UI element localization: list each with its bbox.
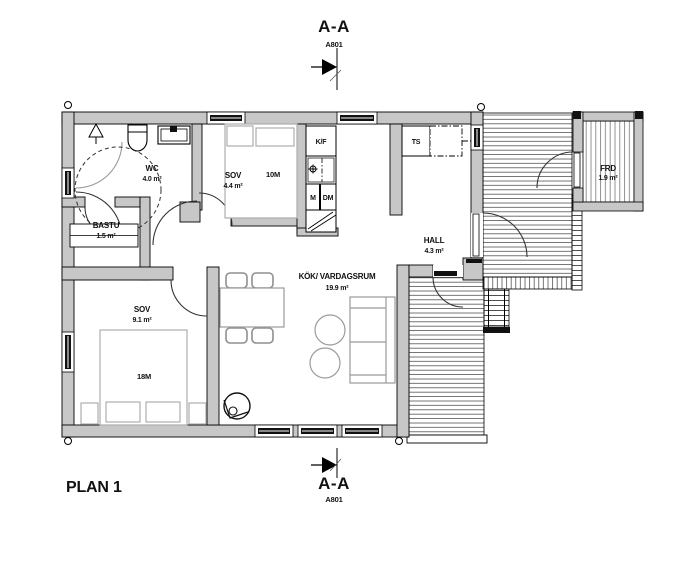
ref-point-marker <box>65 102 72 109</box>
kitchen-sink-unit <box>306 156 336 184</box>
side-table-round <box>315 315 345 345</box>
section-label-bottom: A-A <box>318 474 350 493</box>
pillow <box>106 402 140 422</box>
room-label-sov-small: SOV <box>225 171 242 180</box>
sheet-ref-bottom: A801 <box>325 495 342 504</box>
ref-point-marker <box>65 438 72 445</box>
frd-door-leaf <box>574 153 580 187</box>
room-label-wc: WC <box>146 164 159 173</box>
room-label-hall: HALL <box>424 236 445 245</box>
corner-marker <box>573 111 581 119</box>
wall-corner-block <box>180 202 200 222</box>
section-arrow-head <box>322 457 337 473</box>
frd-floor <box>583 121 634 202</box>
door-threshold <box>434 271 457 276</box>
future-closet-dashed <box>430 126 462 156</box>
section-arrow-head <box>322 59 337 75</box>
wall-sov-large-east <box>207 267 219 425</box>
section-tick <box>330 70 341 81</box>
section-marker-top: A-A A801 <box>311 17 350 90</box>
deck-upper <box>483 113 582 290</box>
room-area-sov-large: 9.1 m² <box>132 317 152 324</box>
door-swing-sov-large <box>171 280 207 316</box>
pillow <box>146 402 180 422</box>
dining-set <box>220 273 284 343</box>
section-marker-bottom: A-A A801 <box>311 448 350 504</box>
window <box>298 425 337 437</box>
wood-stove-icon <box>224 393 250 419</box>
wall-bastu-north <box>62 197 85 207</box>
bedside-table <box>81 403 98 424</box>
wall-north <box>62 112 483 124</box>
wall-sov-large-north <box>62 267 173 280</box>
room-area-bastu: 1.5 m² <box>96 233 116 240</box>
room-label-bastu: BASTU <box>93 221 120 230</box>
wall-hall-south <box>409 265 433 277</box>
room-label-frd: FRD <box>600 164 616 173</box>
page-title: PLAN 1 <box>66 479 122 496</box>
room-label-sov-large: SOV <box>134 305 151 314</box>
window <box>342 425 382 437</box>
stove-unit <box>306 210 336 232</box>
pillow <box>256 128 294 146</box>
section-label-top: A-A <box>318 17 350 36</box>
wall-kitchen-west <box>297 124 306 233</box>
sofa <box>350 297 395 383</box>
bedside-table <box>189 403 206 424</box>
floor-plan-drawing: A-A A801 A-A A801 PLAN 1 WC 4.0 m² BASTU… <box>0 0 694 568</box>
lounge-set <box>310 297 395 383</box>
wall-bastu-north <box>115 197 140 207</box>
wall-hall-stub <box>390 124 402 215</box>
room-area-frd: 1.9 m² <box>598 175 618 182</box>
window <box>62 168 74 198</box>
wall-east-lower <box>397 265 409 437</box>
window <box>471 125 483 150</box>
bed-label-18m: 18M <box>137 372 151 381</box>
bedside-shelf <box>227 126 253 146</box>
room-area-sov-small: 4.4 m² <box>223 183 243 190</box>
washing-machine-label: M <box>310 195 316 202</box>
ref-point-marker <box>396 438 403 445</box>
frd-room <box>573 111 643 211</box>
deck-stairs <box>483 289 510 333</box>
wc-fixtures <box>75 124 190 233</box>
room-area-wc: 4.0 m² <box>142 176 162 183</box>
room-area-hall: 4.3 m² <box>424 248 444 255</box>
corner-marker <box>635 111 643 119</box>
sheet-ref-top: A801 <box>325 40 342 49</box>
washbasin-icon <box>158 126 190 144</box>
drying-cabinet-label: TS <box>412 139 421 146</box>
door-threshold <box>466 259 482 263</box>
bed-label-10m: 10M <box>266 170 280 179</box>
entry-door-leaf <box>473 214 479 256</box>
dining-table <box>220 288 284 327</box>
stair-bottom-step <box>483 327 510 333</box>
wall-wc-east <box>192 124 202 210</box>
window <box>337 112 377 124</box>
ref-point-marker <box>478 104 485 111</box>
window <box>62 332 74 372</box>
window <box>207 112 245 124</box>
deck-edge-south <box>483 277 572 289</box>
room-area-kok-vardagsrum: 19.9 m² <box>326 285 350 292</box>
toilet-icon <box>128 125 147 151</box>
dishwasher-label: DM <box>323 195 334 202</box>
vent-arrow-icon <box>89 124 103 144</box>
side-table-round <box>310 348 340 378</box>
fridge-freezer-label: K/F <box>316 139 328 146</box>
window <box>255 425 293 437</box>
room-label-kok-vardagsrum: KÖK/ VARDAGSRUM <box>299 272 376 281</box>
floor-plan-canvas: A-A A801 A-A A801 PLAN 1 WC 4.0 m² BASTU… <box>0 0 694 568</box>
deck-edge-board <box>407 435 487 443</box>
